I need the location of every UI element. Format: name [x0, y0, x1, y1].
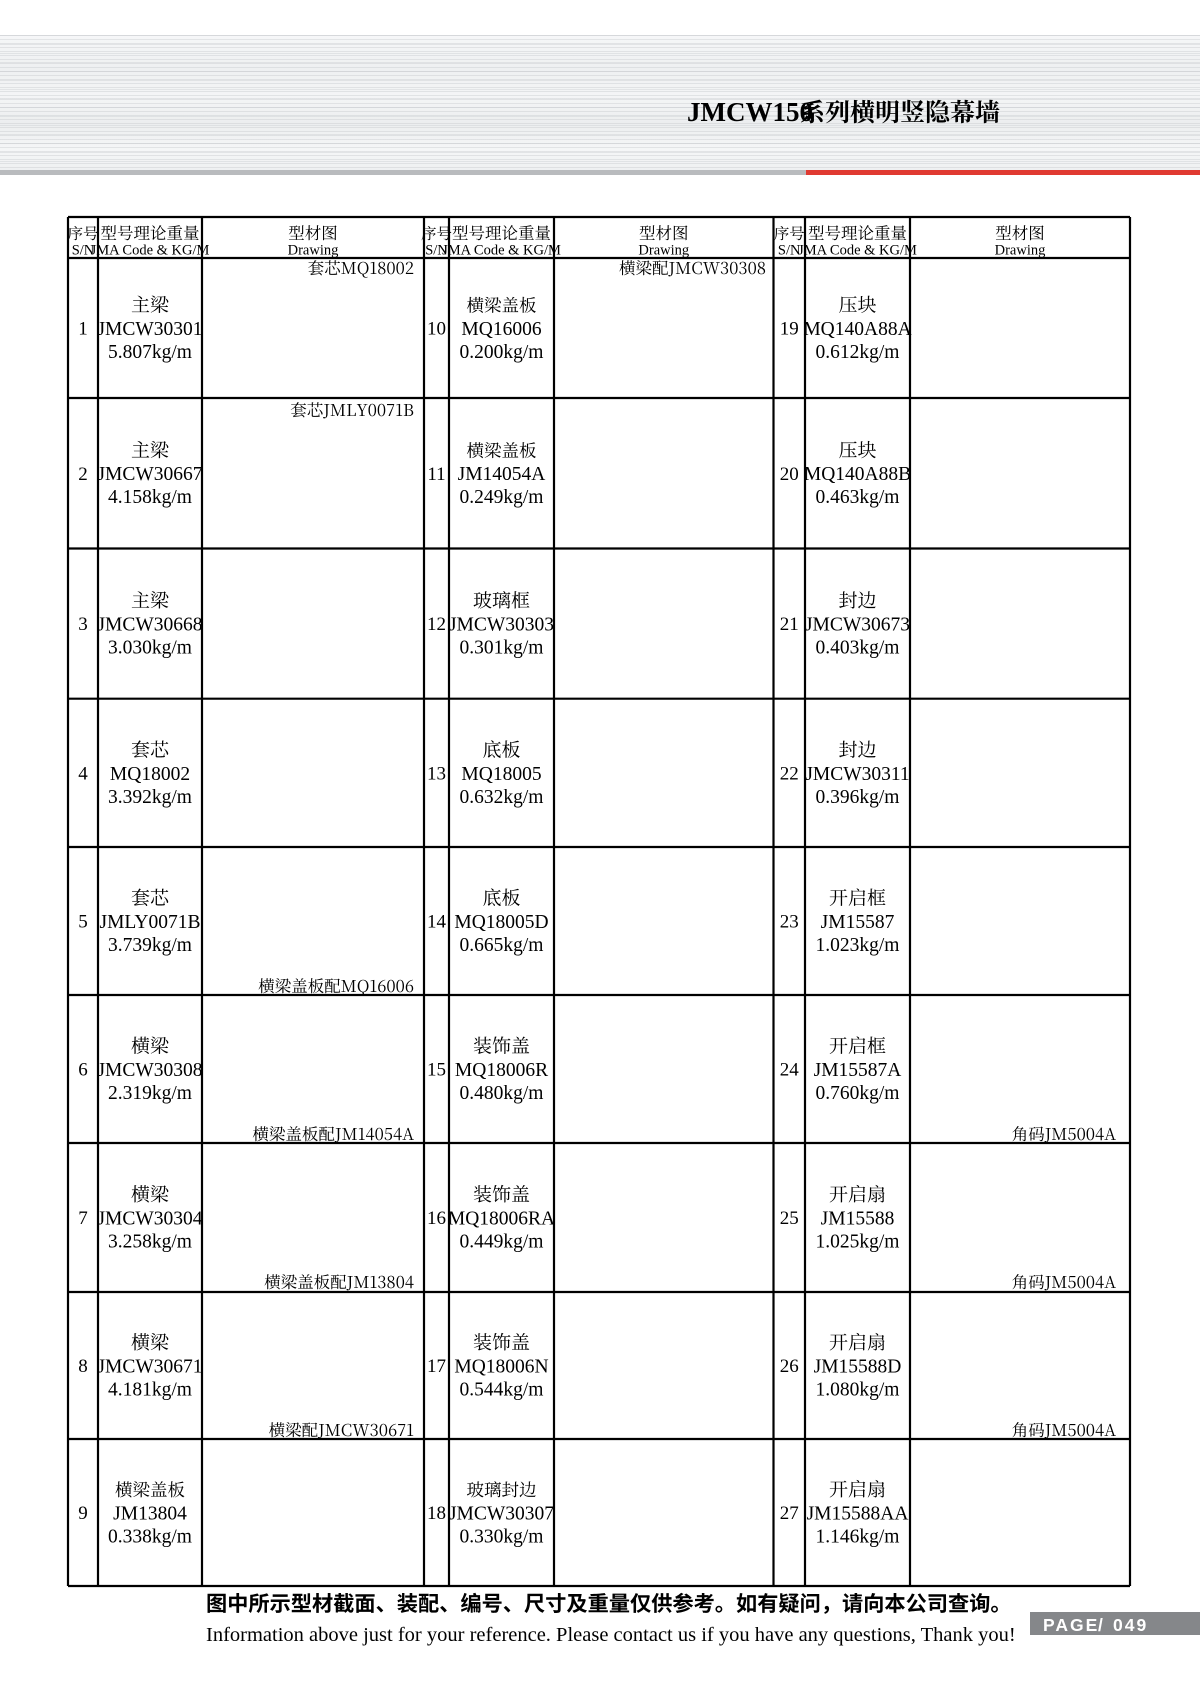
- svg-text:/: /: [1098, 1615, 1103, 1635]
- svg-text:PAGE: PAGE: [1043, 1615, 1099, 1635]
- svg-text:049: 049: [1113, 1615, 1148, 1635]
- svg-text:Information above just for you: Information above just for your referenc…: [206, 1624, 1016, 1646]
